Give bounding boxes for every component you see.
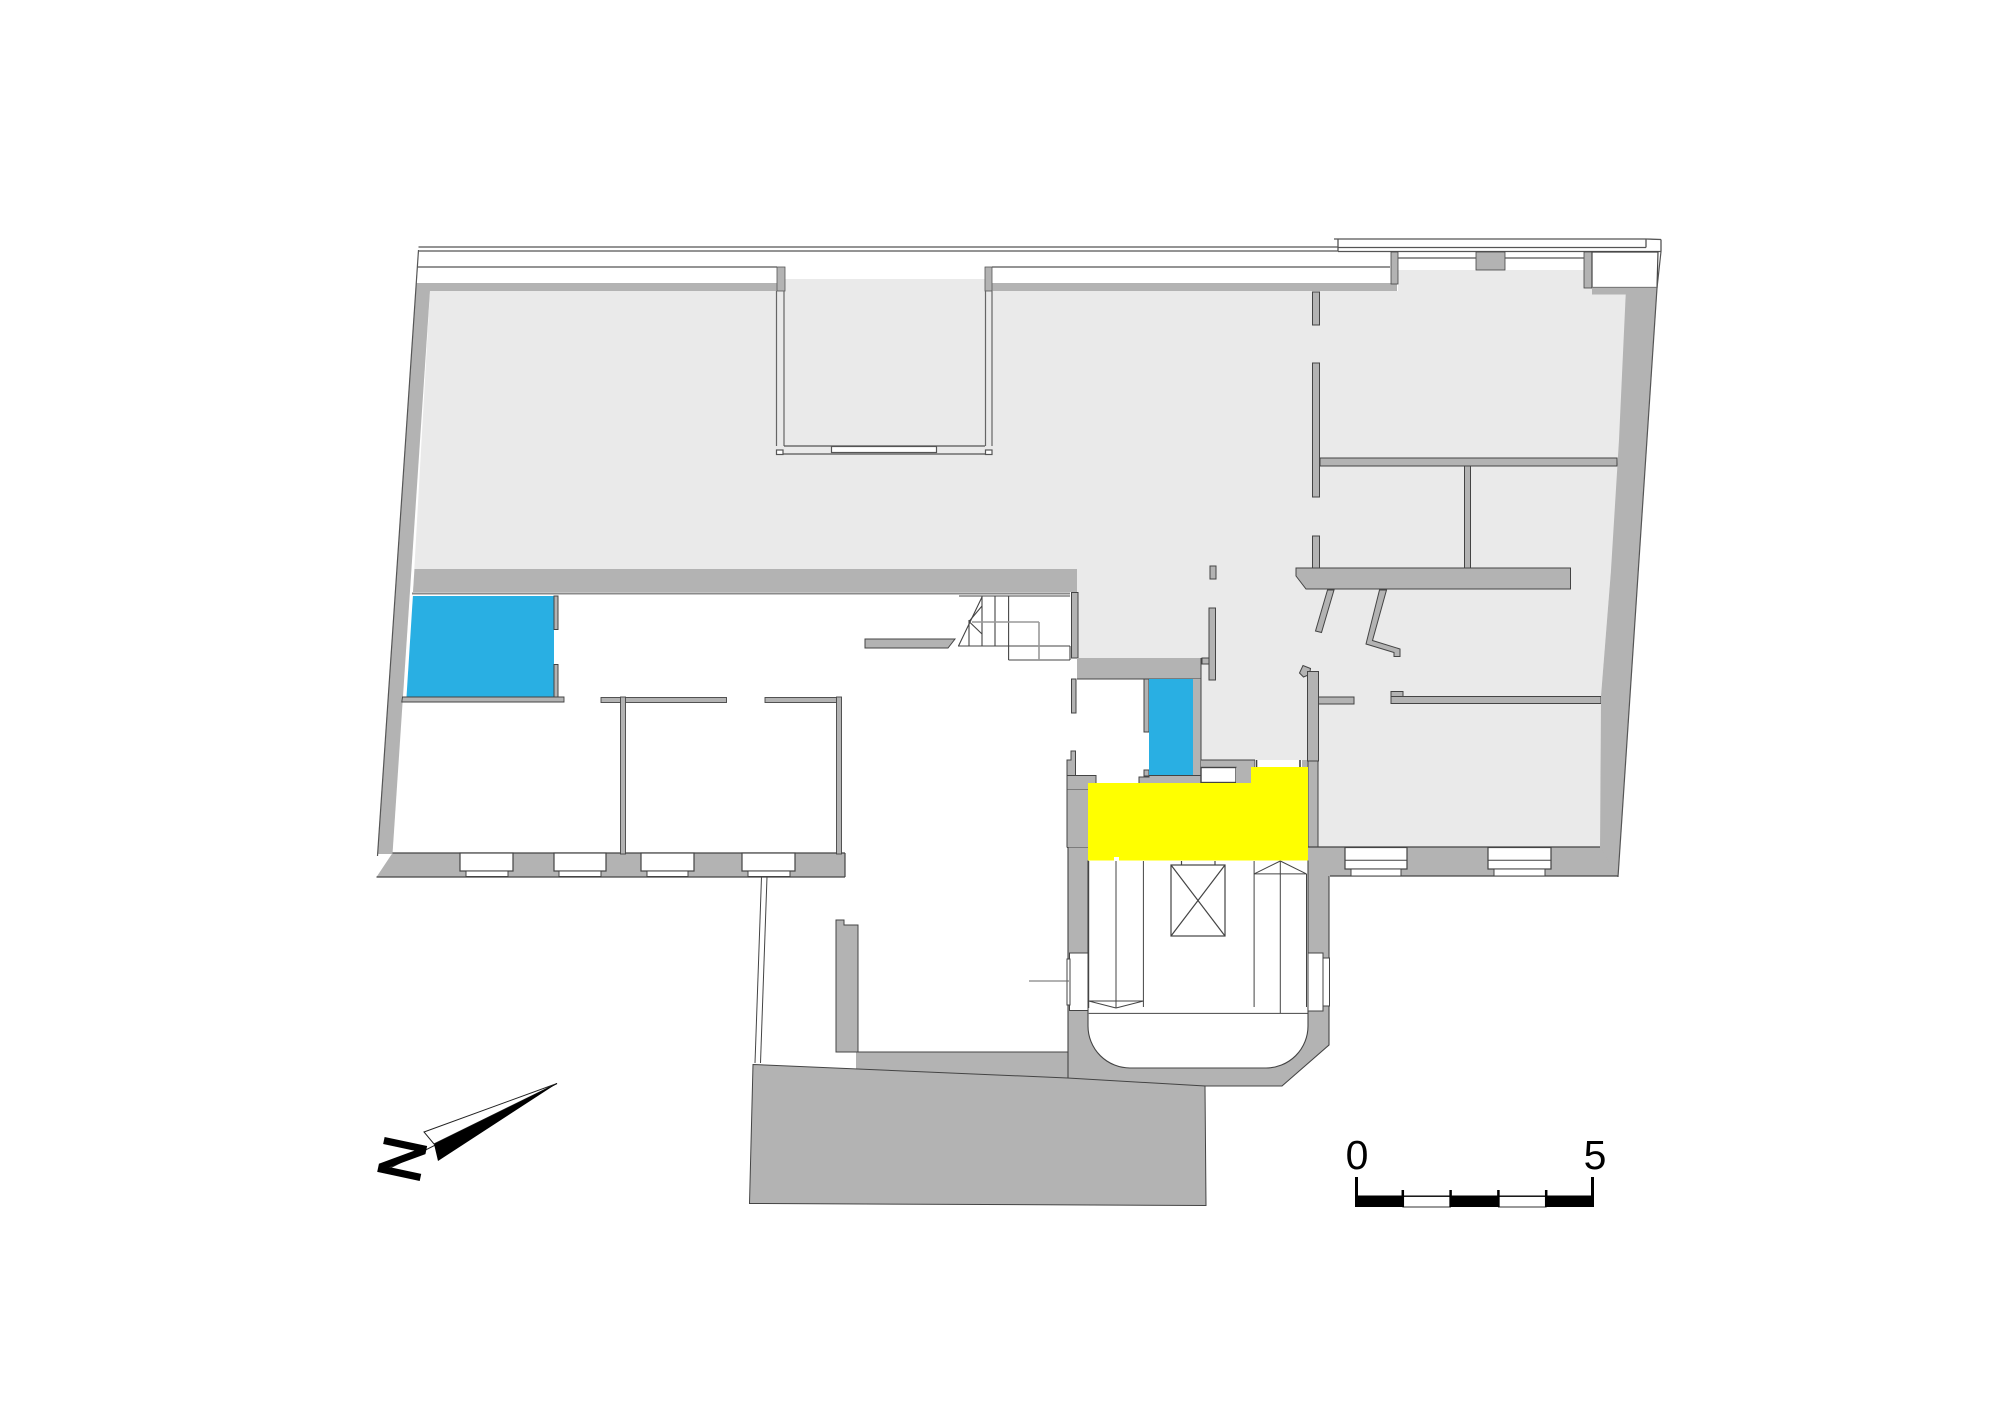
svg-text:5: 5 bbox=[1584, 1132, 1607, 1178]
svg-text:0: 0 bbox=[1346, 1132, 1369, 1178]
